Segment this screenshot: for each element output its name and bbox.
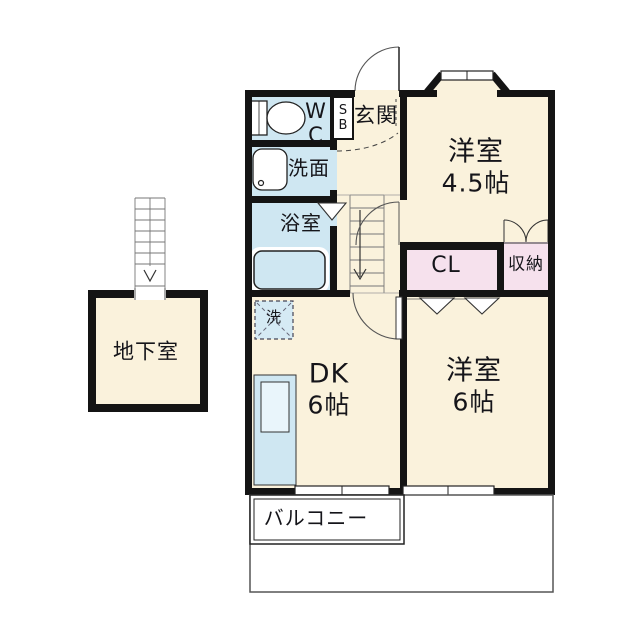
room-label-western-room-45: 洋室 4.5帖	[442, 137, 511, 196]
kitchen-sink	[261, 382, 289, 432]
room-label-western-room-6: 洋室 6帖	[446, 356, 502, 415]
kitchen-counter	[254, 375, 296, 485]
room-label-dk: DK 6帖	[308, 359, 351, 418]
room-size-text: 4.5帖	[442, 169, 511, 197]
dk-door-leaf	[396, 297, 402, 339]
exterior-basement-stairs	[135, 198, 165, 290]
basement-stairs-arrow	[144, 270, 156, 281]
room-name: DK	[308, 359, 351, 389]
toilet-icon	[251, 101, 305, 135]
room-label-bathroom: 浴室	[280, 212, 322, 234]
room-name: 洋室	[442, 137, 511, 167]
room-label-entrance: 玄関	[354, 104, 398, 127]
floorplan-page: WC SB 玄関 洗面 浴室 洋室 4.5帖 CL 収納 DK 6帖 洋室 6帖…	[0, 0, 640, 640]
room-size-text: 6帖	[308, 391, 351, 419]
room-label-laundry: 洗	[266, 309, 282, 326]
room-label-shoebox: SB	[337, 103, 350, 133]
floorplan-drawing	[0, 0, 640, 640]
bathtub-icon	[250, 247, 329, 293]
room-label-washroom: 洗面	[288, 157, 330, 179]
room-size-text: 6帖	[446, 388, 502, 416]
basement-stair-opening	[134, 288, 166, 300]
room-label-storage: 収納	[508, 256, 544, 275]
room-label-basement: 地下室	[113, 340, 179, 363]
room-label-wc: WC	[305, 99, 326, 147]
sink-icon	[253, 149, 287, 190]
entrance-door-arc	[355, 47, 399, 91]
room-label-balcony: バルコニー	[264, 507, 369, 529]
room-name: 洋室	[446, 356, 502, 386]
room-label-closet: CL	[431, 254, 461, 278]
